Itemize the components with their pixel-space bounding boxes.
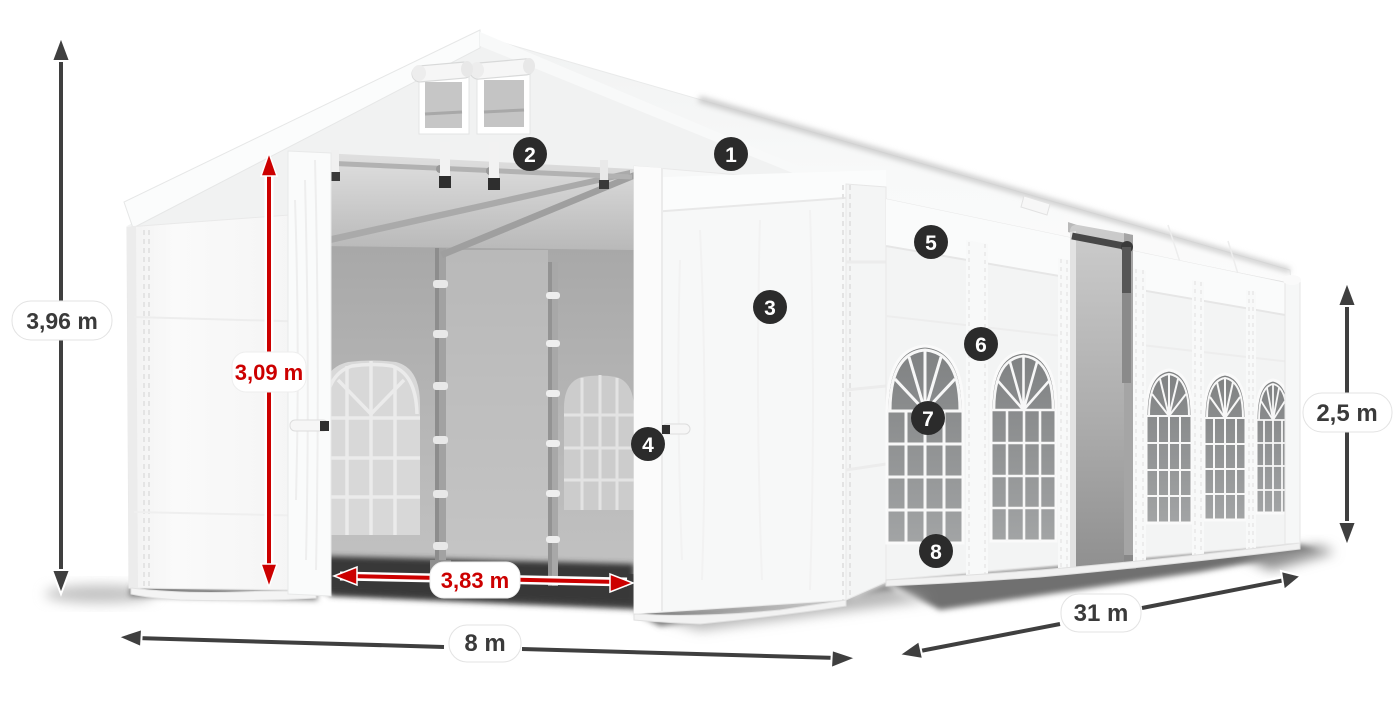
svg-text:2: 2 bbox=[524, 144, 536, 167]
svg-text:6: 6 bbox=[975, 334, 987, 357]
svg-text:4: 4 bbox=[642, 434, 654, 457]
svg-text:5: 5 bbox=[925, 232, 937, 255]
svg-text:1: 1 bbox=[725, 144, 737, 167]
svg-text:3: 3 bbox=[764, 297, 776, 320]
svg-text:3,09 m: 3,09 m bbox=[235, 360, 304, 385]
svg-text:3,83 m: 3,83 m bbox=[441, 568, 510, 593]
svg-text:7: 7 bbox=[922, 408, 934, 431]
svg-text:2,5 m: 2,5 m bbox=[1316, 400, 1377, 427]
svg-text:8: 8 bbox=[930, 541, 942, 564]
svg-text:3,96 m: 3,96 m bbox=[26, 308, 98, 334]
svg-text:31 m: 31 m bbox=[1074, 600, 1129, 627]
svg-text:8 m: 8 m bbox=[464, 630, 505, 657]
